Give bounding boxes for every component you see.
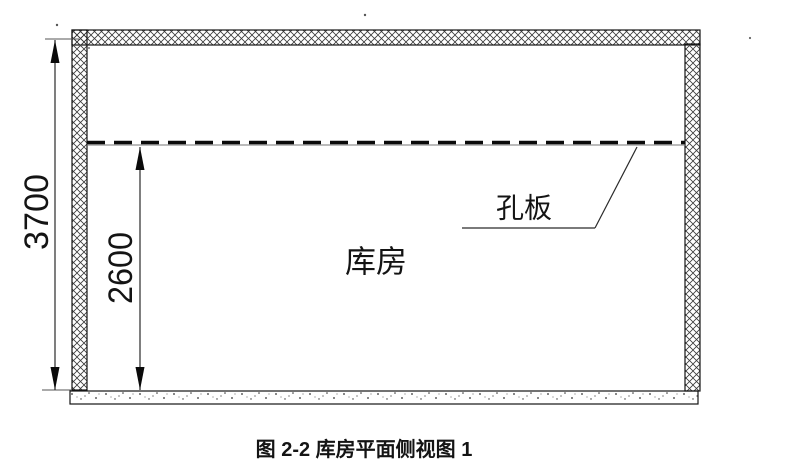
floor-slab (70, 391, 698, 404)
dim-3700-arrow-down (51, 367, 60, 390)
plate-label: 孔板 (496, 193, 552, 224)
scan-speck (749, 37, 751, 39)
dim-2600-label: 2600 (102, 232, 140, 304)
plate-leader-diagonal (595, 147, 637, 228)
top-wall (72, 30, 700, 45)
warehouse-drawing-canvas: 孔板 3700 2600 库房 图 2-2 库房平面侧视图 1 (0, 0, 786, 476)
dim-3700-arrow-up (51, 40, 60, 63)
dim-3700-label: 3700 (18, 174, 56, 250)
scan-speck (56, 24, 58, 26)
room-label: 库房 (345, 245, 407, 280)
warehouse-side-view-figure: 孔板 3700 2600 库房 图 2-2 库房平面侧视图 1 (0, 0, 786, 476)
figure-caption: 图 2-2 库房平面侧视图 1 (256, 437, 473, 461)
right-wall (685, 44, 700, 391)
scan-speck (88, 47, 90, 49)
dim-2600-arrow-up (136, 147, 145, 170)
left-wall (72, 30, 87, 390)
scan-speck (364, 14, 366, 16)
dim-2600-arrow-down (136, 367, 145, 390)
